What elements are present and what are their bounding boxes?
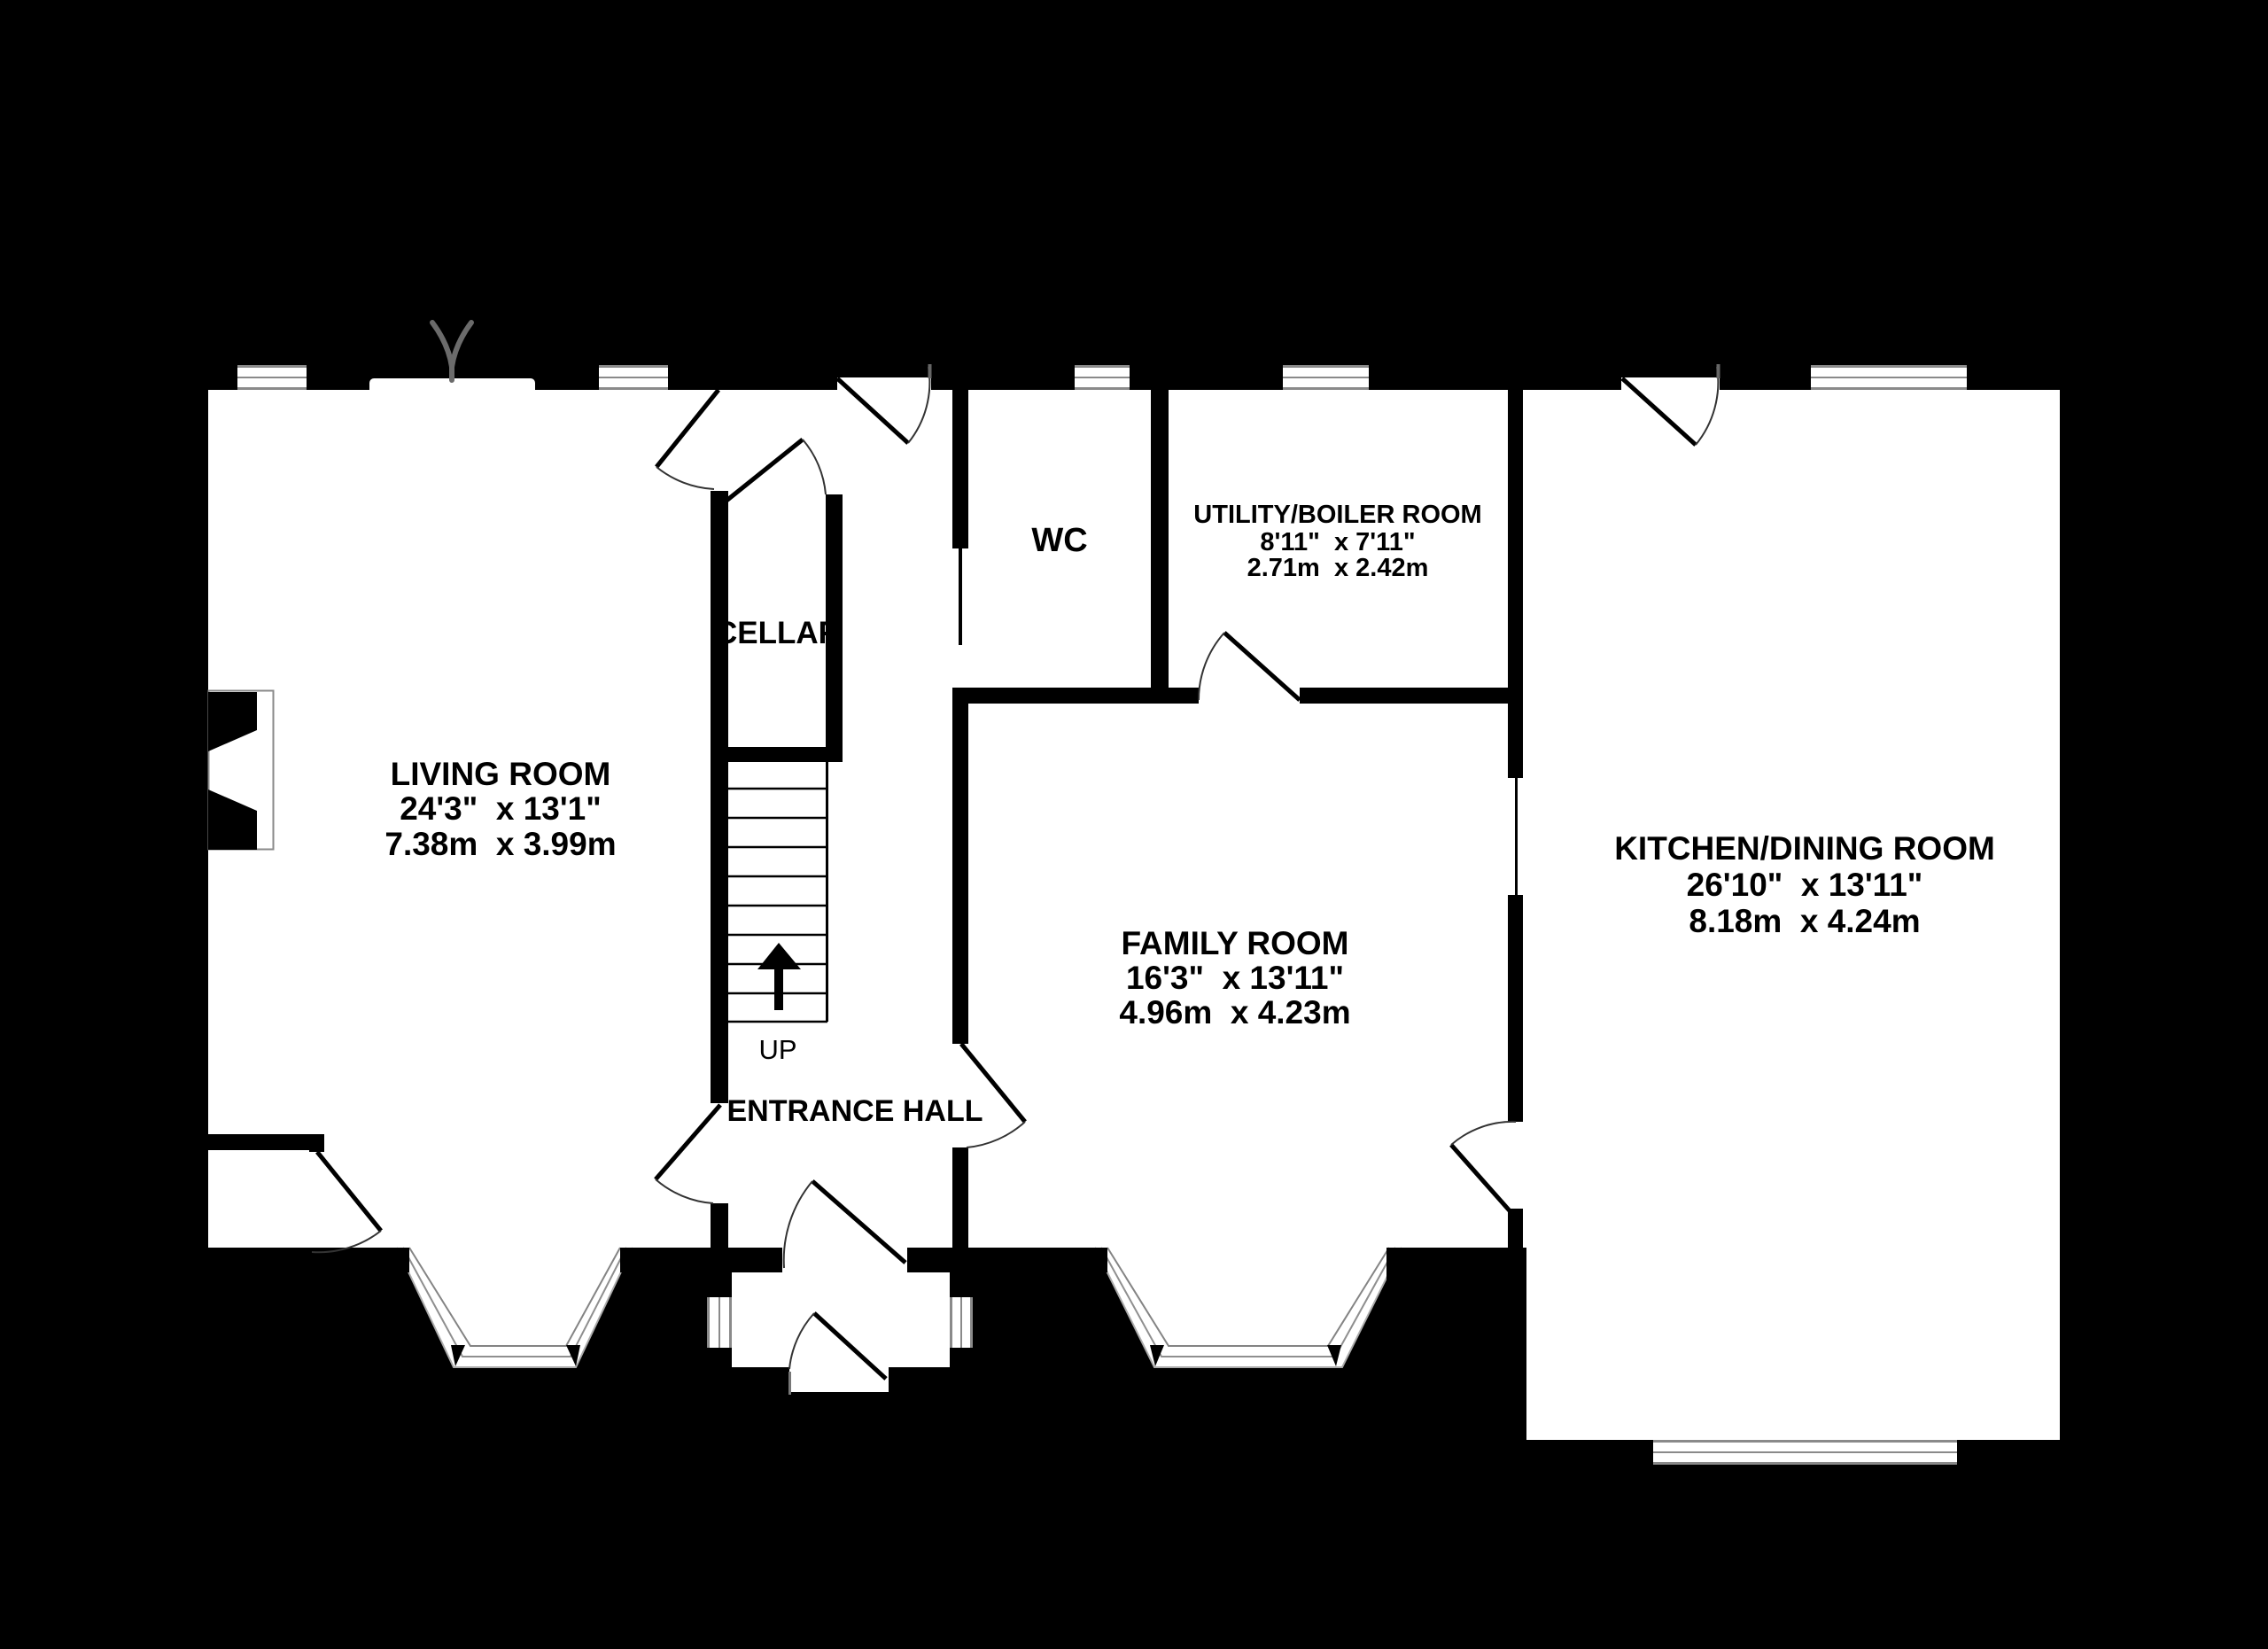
svg-text:24'3" x 13'1": 24'3" x 13'1"	[400, 790, 602, 827]
svg-text:4.96m x 4.23m: 4.96m x 4.23m	[1119, 994, 1350, 1031]
svg-text:UP: UP	[758, 1034, 796, 1065]
svg-text:WC: WC	[1031, 522, 1087, 559]
svg-text:2.71m x 2.42m: 2.71m x 2.42m	[1247, 554, 1429, 582]
svg-text:8.18m x 4.24m: 8.18m x 4.24m	[1689, 903, 1920, 939]
svg-text:UTILITY/BOILER ROOM: UTILITY/BOILER ROOM	[1193, 501, 1481, 529]
svg-text:7.38m x 3.99m: 7.38m x 3.99m	[384, 826, 616, 862]
svg-text:LIVING ROOM: LIVING ROOM	[391, 756, 611, 792]
svg-text:16'3" x 13'11": 16'3" x 13'11"	[1126, 960, 1344, 996]
svg-text:FAMILY ROOM: FAMILY ROOM	[1122, 925, 1349, 961]
svg-text:KITCHEN/DINING ROOM: KITCHEN/DINING ROOM	[1614, 830, 1995, 867]
svg-text:ENTRANCE HALL: ENTRANCE HALL	[727, 1094, 983, 1128]
svg-text:26'10" x 13'11": 26'10" x 13'11"	[1687, 867, 1923, 903]
svg-text:CELLAR: CELLAR	[715, 616, 841, 650]
svg-text:8'11" x 7'11": 8'11" x 7'11"	[1260, 528, 1415, 556]
